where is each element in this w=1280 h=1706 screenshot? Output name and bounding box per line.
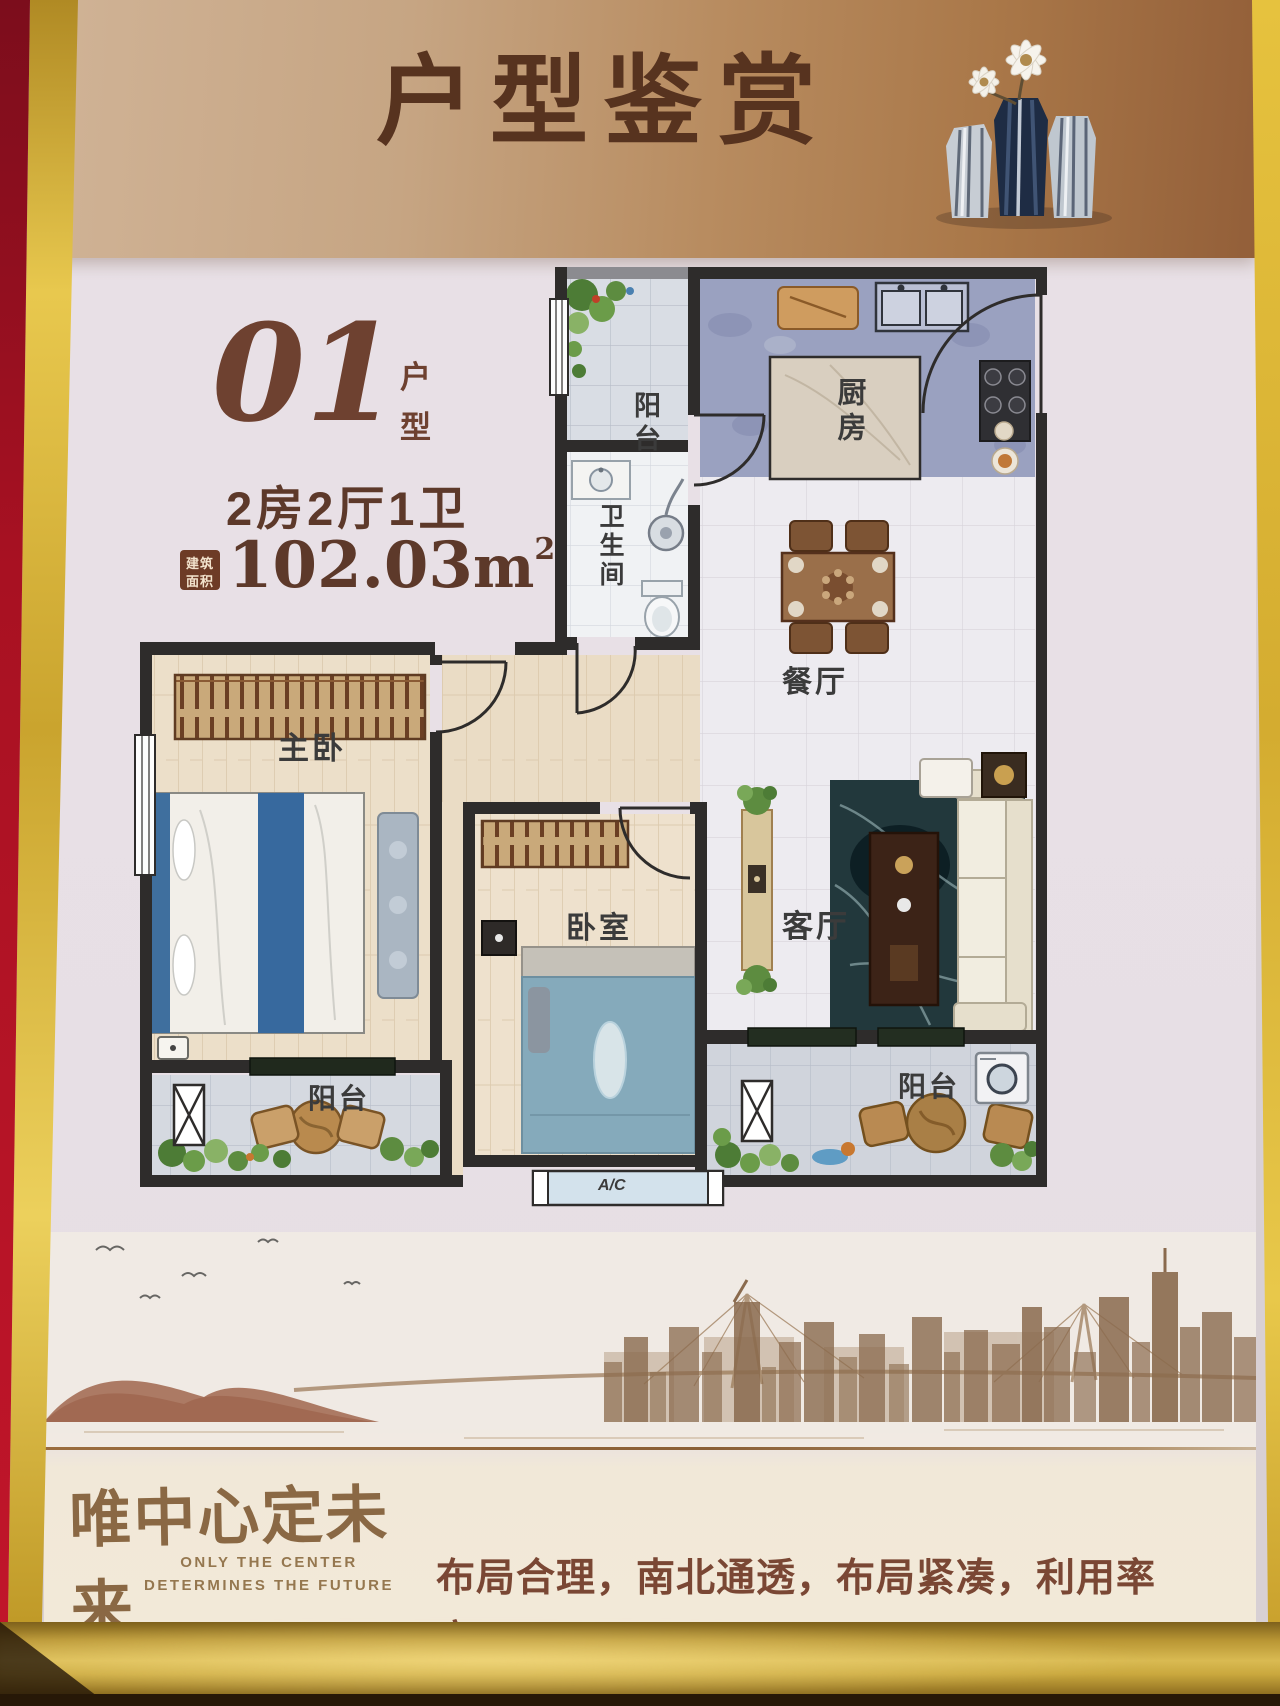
bedroom-wardrobe bbox=[482, 821, 628, 867]
balcony-door-right bbox=[748, 1028, 856, 1046]
frame-bottom-shadow bbox=[0, 1694, 1280, 1706]
slogan-en-line2: DETERMINES THE FUTURE bbox=[104, 1575, 434, 1598]
master-bed bbox=[152, 793, 364, 1033]
balcony-chair bbox=[859, 1101, 910, 1147]
scenery-illustration bbox=[44, 1232, 1256, 1448]
balcony-chair bbox=[983, 1103, 1034, 1149]
vase-center-icon bbox=[994, 98, 1048, 216]
floorplan: 阳台 厨房 卫生间 餐厅 主卧 卧室 客厅 阳台 阳台 A/C bbox=[130, 265, 1050, 1210]
room-label-dining: 餐厅 bbox=[782, 657, 848, 701]
vase-illustration bbox=[896, 20, 1146, 232]
balcony-door-right2 bbox=[878, 1028, 964, 1046]
vase-decoration bbox=[896, 20, 1146, 232]
scenery bbox=[44, 1232, 1256, 1448]
vase-right-icon bbox=[1048, 116, 1096, 218]
room-label-balcony-left: 阳台 bbox=[308, 1077, 370, 1117]
dining-chair bbox=[790, 521, 832, 551]
sideboard bbox=[742, 810, 772, 970]
vase-left-icon bbox=[946, 124, 992, 218]
room-label-bathroom: 卫生间 bbox=[592, 503, 628, 590]
room-label-balcony-top: 阳台 bbox=[626, 391, 665, 457]
lotus-flower-icon bbox=[1006, 40, 1046, 80]
poster-photo: 户型鉴赏 bbox=[0, 0, 1280, 1706]
page-title: 户型鉴赏 bbox=[324, 22, 884, 164]
coffee-table bbox=[870, 833, 938, 1005]
room-label-ac: A/C bbox=[598, 1177, 626, 1195]
dining-chair bbox=[846, 623, 888, 653]
slogan-en-line1: ONLY THE CENTER bbox=[104, 1552, 434, 1575]
room-label-master-bedroom: 主卧 bbox=[278, 723, 346, 768]
dining-chair bbox=[846, 521, 888, 551]
room-label-balcony-right: 阳台 bbox=[898, 1065, 960, 1105]
toilet-tank bbox=[642, 581, 682, 596]
balcony-door-left bbox=[250, 1058, 395, 1075]
banner: 户型鉴赏 bbox=[44, 0, 1256, 258]
ac-platform bbox=[533, 1171, 723, 1205]
frame-bottom bbox=[0, 1622, 1280, 1706]
lotus-flower-small-icon bbox=[969, 67, 999, 97]
room-label-living-room: 客厅 bbox=[782, 901, 850, 946]
bedroom-bed bbox=[522, 947, 695, 1153]
slogan-en: ONLY THE CENTER DETERMINES THE FUTURE bbox=[104, 1552, 434, 1597]
room-label-kitchen: 厨房 bbox=[828, 377, 870, 447]
washing-machine bbox=[976, 1053, 1028, 1103]
room-label-bedroom: 卧室 bbox=[566, 903, 632, 947]
dining-chair bbox=[790, 623, 832, 653]
armchair bbox=[920, 759, 972, 797]
poster: 户型鉴赏 bbox=[44, 0, 1256, 1622]
divider-line bbox=[44, 1447, 1256, 1450]
sofa bbox=[954, 770, 1032, 1035]
